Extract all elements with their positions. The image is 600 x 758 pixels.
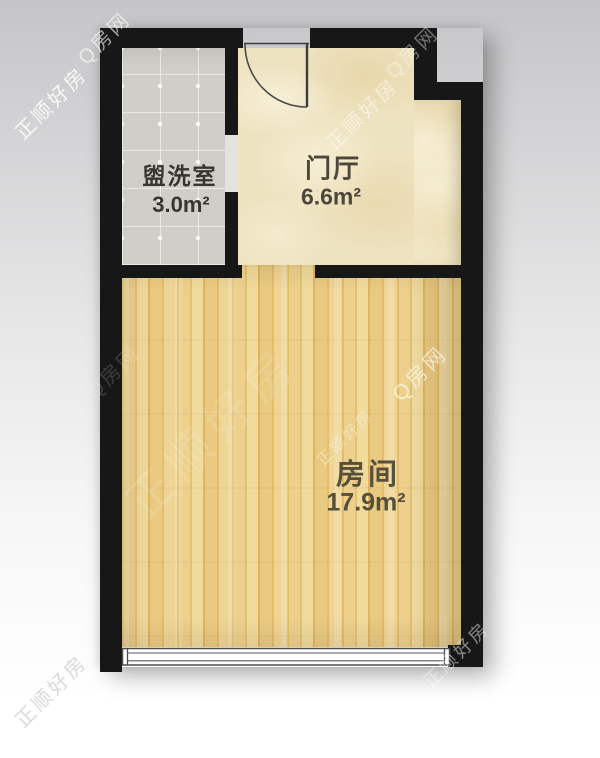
- watermark-brand: 正顺好房: [7, 647, 93, 733]
- washroom-name-label: 盥洗室: [143, 157, 218, 191]
- main-room-name-label: 房间: [336, 451, 400, 493]
- entry-door-swing-icon: [238, 26, 318, 118]
- washroom-doorway-threshold: [225, 135, 238, 192]
- wall-middle-right: [315, 265, 461, 278]
- entry-hall-floor-lower: [414, 100, 461, 265]
- floor-plan-page: { "rooms": [ {"name": "盥洗室", "area": "3.…: [0, 0, 600, 758]
- entry-hall-area-label: 6.6m²: [301, 184, 361, 211]
- entry-hall-name-label: 门厅: [305, 149, 361, 186]
- washroom-area-label: 3.0m²: [152, 192, 209, 218]
- wall-right-exterior: [461, 82, 483, 667]
- wall-middle-left: [100, 265, 242, 278]
- window: [115, 642, 460, 672]
- wall-washroom-upper: [225, 48, 238, 135]
- main-room-area-label: 17.9m²: [326, 489, 405, 518]
- watermark-brand: 正顺好房: [7, 59, 93, 145]
